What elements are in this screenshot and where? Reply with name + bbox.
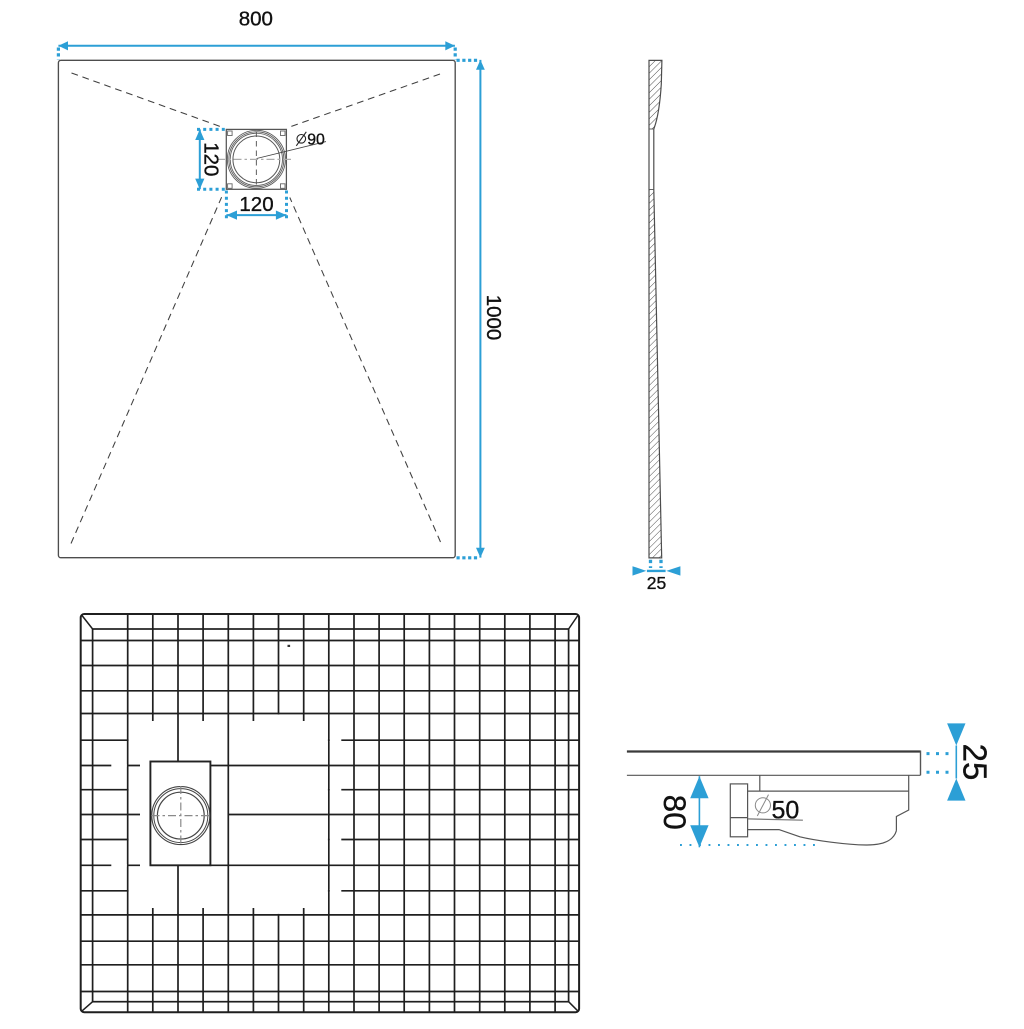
svg-text:800: 800 xyxy=(239,8,273,31)
svg-text:1000: 1000 xyxy=(482,295,505,341)
svg-text:90: 90 xyxy=(307,131,325,148)
svg-text:120: 120 xyxy=(199,142,222,176)
svg-text:25: 25 xyxy=(647,573,666,593)
svg-text:120: 120 xyxy=(239,193,273,216)
svg-text:25: 25 xyxy=(957,744,994,781)
svg-text:80: 80 xyxy=(657,795,693,830)
